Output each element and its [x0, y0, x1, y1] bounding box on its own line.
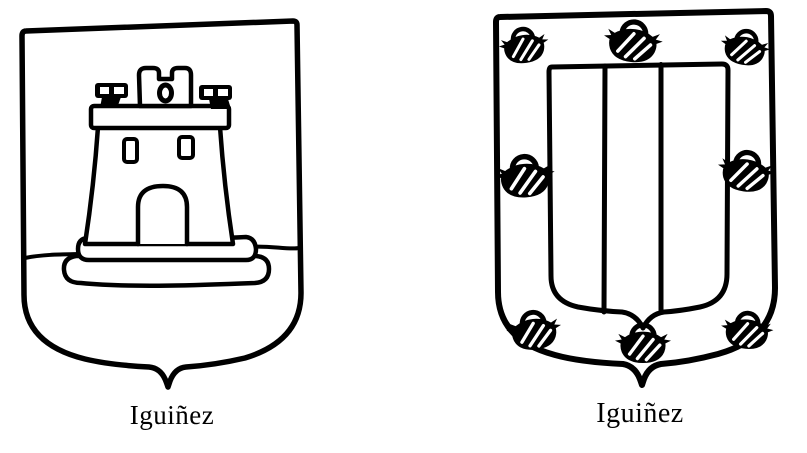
coat-of-arms-castle	[0, 0, 340, 400]
coat-of-arms-cauldrons	[467, 0, 807, 400]
figure-label: Iguiñez	[530, 398, 750, 430]
figure-label: Iguiñez	[62, 400, 282, 431]
battlement-band	[91, 106, 229, 128]
book-page: Iguiñez Iguiñez	[0, 0, 807, 453]
central-turret-window	[160, 85, 172, 101]
inner-escutcheon	[549, 64, 728, 328]
castle-door	[138, 186, 187, 244]
pale-divider-left	[604, 66, 605, 312]
castle-window-left	[124, 139, 137, 162]
castle-window-right	[179, 137, 193, 158]
